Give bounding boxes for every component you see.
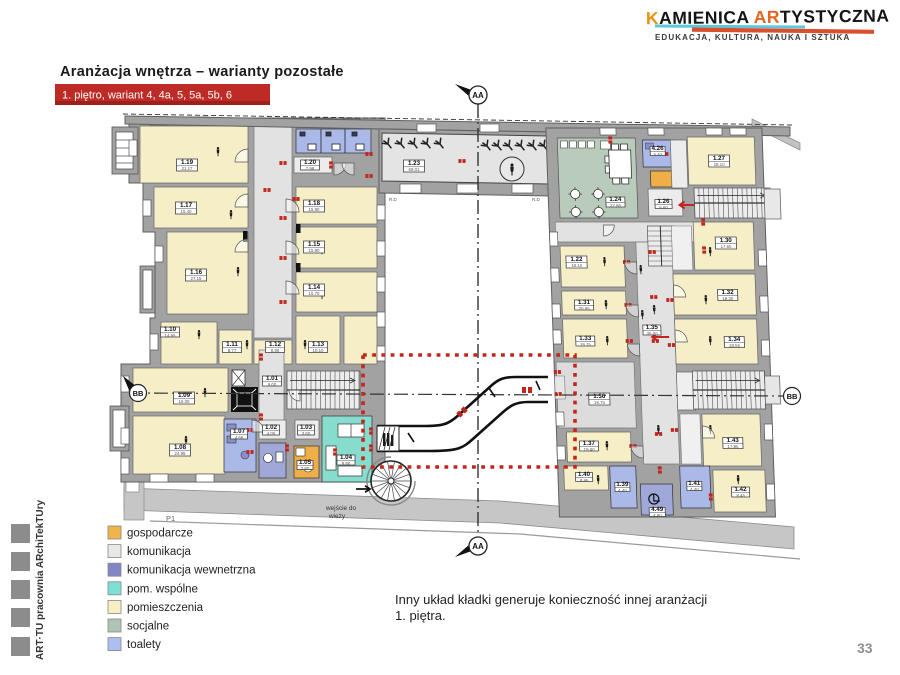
svg-text:18.55: 18.55 [729,343,741,348]
svg-text:komunikacja wewnetrzna: komunikacja wewnetrzna [127,565,256,577]
svg-text:18.10: 18.10 [714,162,726,167]
svg-text:1.26: 1.26 [657,198,670,205]
svg-text:toalety: toalety [127,639,161,651]
svg-text:1.01: 1.01 [266,375,279,382]
svg-text:4.80: 4.80 [653,513,662,518]
svg-text:1. piętra.: 1. piętra. [395,608,446,623]
svg-text:1.30: 1.30 [720,237,733,244]
svg-text:1.20: 1.20 [304,159,317,166]
svg-text:BB: BB [133,389,144,398]
svg-text:14.65: 14.65 [165,333,177,338]
svg-text:R.D: R.D [532,197,541,202]
svg-text:21.17: 21.17 [182,166,194,171]
svg-text:1.10: 1.10 [164,326,177,333]
svg-text:4.40: 4.40 [690,487,699,492]
svg-text:27.15: 27.15 [191,276,203,281]
svg-text:1.36: 1.36 [593,393,606,400]
svg-text:8.45: 8.45 [736,493,745,498]
svg-text:AA: AA [472,91,484,100]
svg-text:4.40: 4.40 [618,488,627,493]
svg-text:9.80: 9.80 [342,461,351,466]
svg-text:4.49: 4.49 [651,506,664,513]
svg-text:1.13: 1.13 [312,341,325,348]
svg-text:1.03: 1.03 [300,424,313,431]
svg-text:1.37: 1.37 [583,440,596,447]
svg-text:EDUKACJA, KULTURA, NAUKA I SZT: EDUKACJA, KULTURA, NAUKA I SZTUKA [655,33,850,42]
svg-text:1.07: 1.07 [233,428,246,435]
svg-text:1.27: 1.27 [713,155,726,162]
svg-text:1.14: 1.14 [308,284,321,291]
svg-text:8.90: 8.90 [271,348,280,353]
svg-text:pom. wspólne: pom. wspólne [127,583,198,595]
svg-text:pomieszczenia: pomieszczenia [127,602,204,614]
svg-text:15.80: 15.80 [309,248,321,253]
svg-text:1.43: 1.43 [727,437,740,444]
svg-text:1.24: 1.24 [609,196,622,203]
svg-text:P1: P1 [166,514,175,523]
svg-text:8.77: 8.77 [228,348,237,353]
svg-text:3.60: 3.60 [302,431,311,436]
svg-text:19.75: 19.75 [580,342,592,347]
svg-text:1.04: 1.04 [340,454,353,461]
svg-text:18.10: 18.10 [571,263,583,268]
svg-text:19.40: 19.40 [584,447,596,452]
svg-text:24.95: 24.95 [175,451,187,456]
svg-text:1.35: 1.35 [646,324,659,331]
svg-text:35.00: 35.00 [646,331,658,336]
svg-text:6.60: 6.60 [659,205,668,210]
svg-text:1.15: 1.15 [308,241,321,248]
svg-text:19.75: 19.75 [594,400,606,405]
svg-text:4.05: 4.05 [267,431,276,436]
svg-text:15.40: 15.40 [181,209,193,214]
svg-text:gospodarcze: gospodarcze [127,528,193,540]
svg-text:socjalne: socjalne [127,621,169,633]
svg-text:4.26: 4.26 [651,145,664,152]
svg-text:1.18: 1.18 [308,200,321,207]
svg-text:10.10: 10.10 [313,348,325,353]
svg-text:69.01: 69.01 [409,167,421,172]
svg-text:1.17: 1.17 [180,202,193,209]
svg-text:18.30: 18.30 [722,296,734,301]
svg-text:1.33: 1.33 [579,335,592,342]
svg-text:15.90: 15.90 [309,207,321,212]
svg-text:BB: BB [787,392,798,401]
svg-text:27.65: 27.65 [610,203,622,208]
svg-text:17.85: 17.85 [727,444,739,449]
svg-text:17.65: 17.65 [720,244,732,249]
svg-text:20.95: 20.95 [579,306,591,311]
svg-text:4.66: 4.66 [235,435,244,440]
svg-text:1.05: 1.05 [299,459,312,466]
svg-text:wejście do: wejście do [325,505,357,512]
svg-text:R.D: R.D [389,197,398,202]
svg-text:1.02: 1.02 [265,424,278,431]
svg-text:Aranżacja wnętrza – warianty p: Aranżacja wnętrza – warianty pozostałe [60,64,344,80]
svg-text:ART·TU pracownia ARchiTekTUry: ART·TU pracownia ARchiTekTUry [35,500,46,660]
svg-text:1.42: 1.42 [734,486,747,493]
svg-text:1.16: 1.16 [190,269,203,276]
svg-text:9.00: 9.00 [268,382,277,387]
svg-text:16.00: 16.00 [179,399,191,404]
svg-text:1.40: 1.40 [578,471,591,478]
svg-text:Inny układ kładki generuje kon: Inny układ kładki generuje konieczność i… [395,592,707,607]
svg-text:1.41: 1.41 [688,480,701,487]
svg-text:1. piętro, wariant 4, 4a, 5, 5: 1. piętro, wariant 4, 4a, 5, 5a, 5b, 6 [62,90,232,102]
svg-text:5.40: 5.40 [653,152,662,157]
svg-text:1.34: 1.34 [728,336,741,343]
svg-text:1.12: 1.12 [269,341,282,348]
svg-text:7.98: 7.98 [306,166,315,171]
svg-text:1.08: 1.08 [174,444,187,451]
svg-text:1.19: 1.19 [181,159,194,166]
svg-text:2.80: 2.80 [301,466,310,471]
svg-text:1.31: 1.31 [578,299,591,306]
svg-text:AA: AA [472,542,484,551]
svg-text:33: 33 [857,640,873,656]
svg-text:1.23: 1.23 [408,160,421,167]
svg-text:wieży: wieży [328,513,346,520]
svg-text:1.39: 1.39 [616,481,629,488]
svg-text:1.22: 1.22 [570,256,583,263]
svg-text:8.95: 8.95 [580,478,589,483]
svg-text:1.32: 1.32 [721,289,734,296]
svg-text:komunikacja: komunikacja [127,546,192,558]
svg-text:1.11: 1.11 [226,341,238,348]
svg-text:15.70: 15.70 [309,291,321,296]
